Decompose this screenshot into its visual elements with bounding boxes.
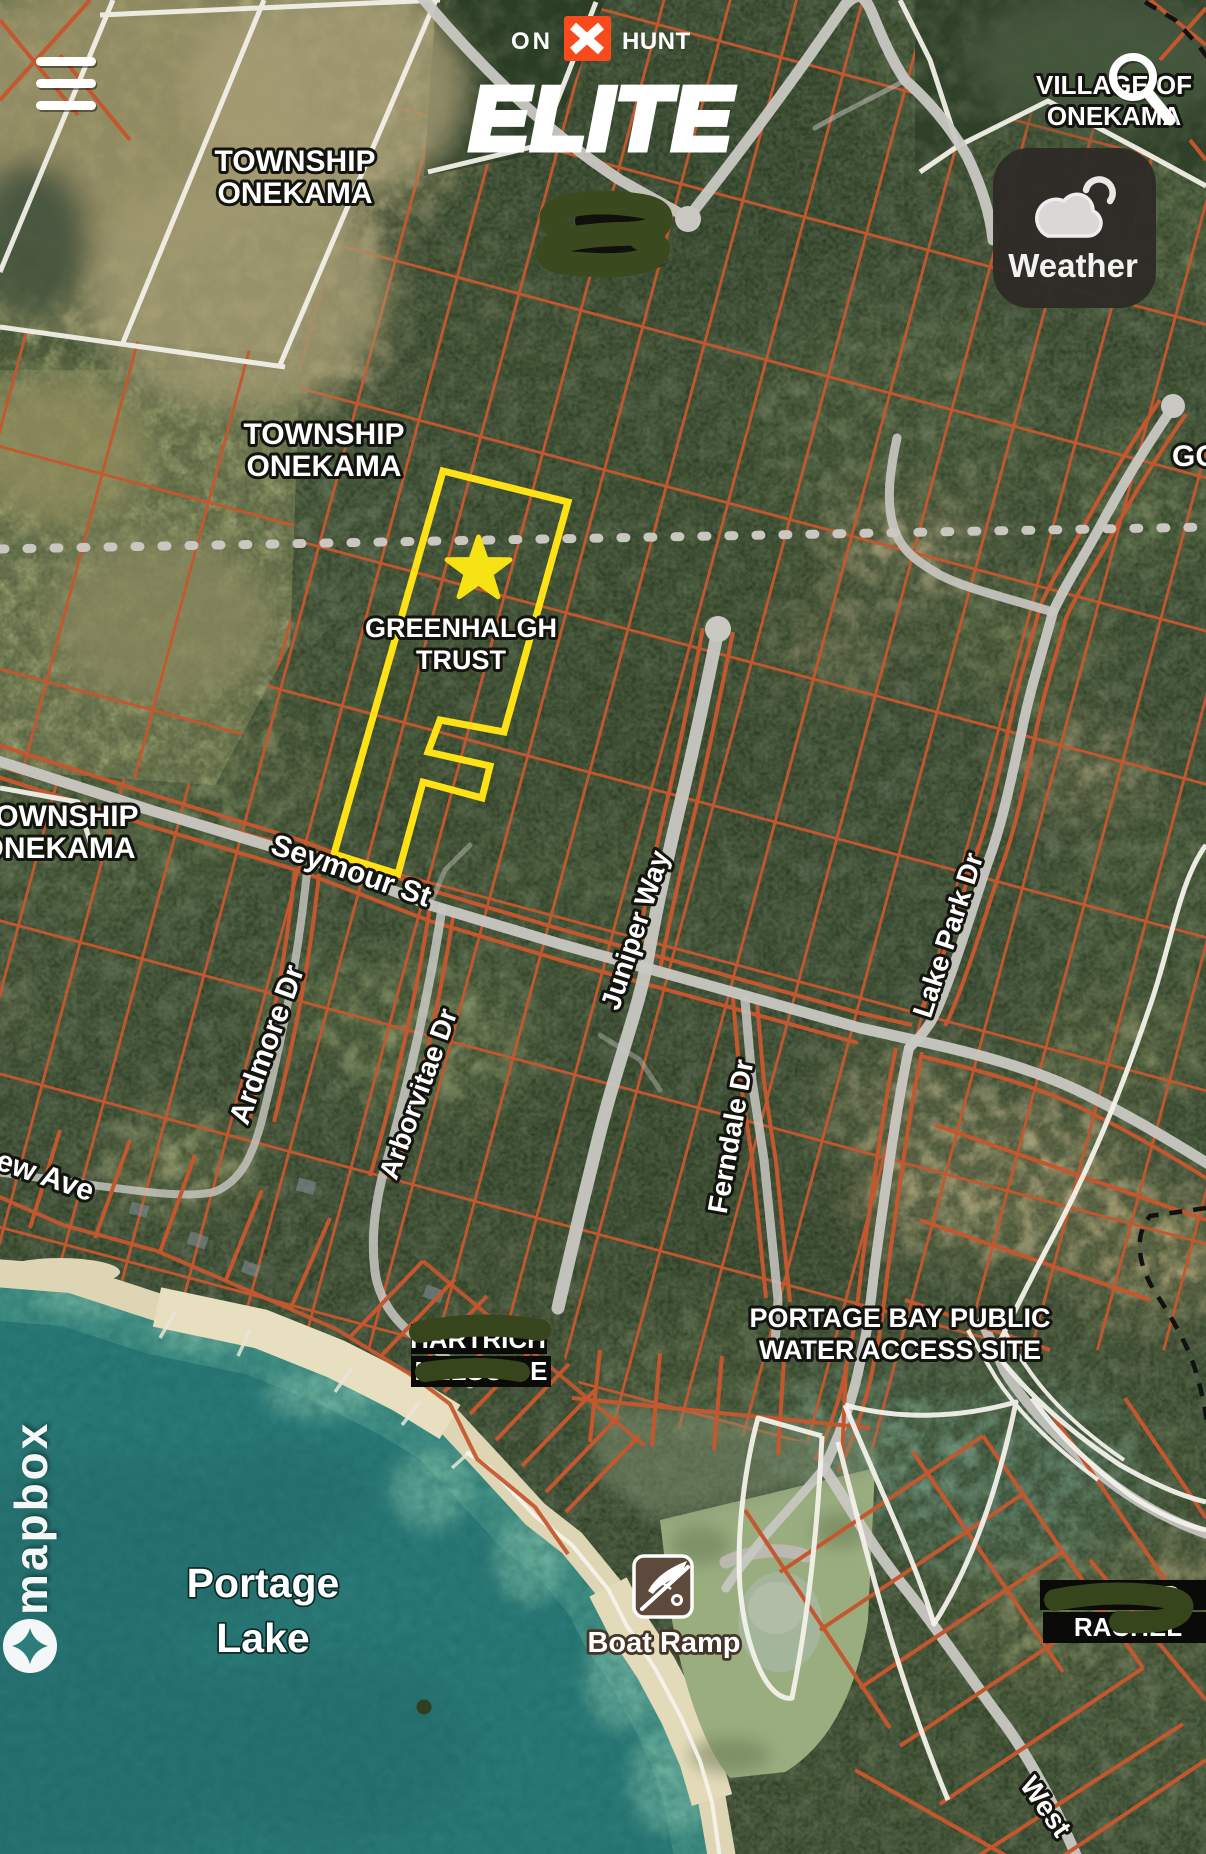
svg-text:TRUST: TRUST [416, 645, 506, 675]
svg-text:TOWNSHIP: TOWNSHIP [0, 800, 139, 833]
svg-text:mapbox: mapbox [5, 1421, 57, 1615]
svg-text:ONEKAMA: ONEKAMA [247, 450, 402, 483]
svg-text:Boat Ramp: Boat Ramp [587, 1627, 740, 1659]
svg-text:GREENHALGH: GREENHALGH [365, 613, 557, 643]
svg-text:ELITE: ELITE [470, 69, 734, 168]
svg-text:HUNT: HUNT [622, 28, 691, 55]
svg-text:Lake: Lake [216, 1615, 309, 1661]
svg-text:ONEKAMA: ONEKAMA [0, 832, 136, 865]
svg-text:ONEKAMA: ONEKAMA [218, 177, 373, 210]
svg-text:ON: ON [511, 28, 553, 55]
svg-text:PORTAGE BAY PUBLIC: PORTAGE BAY PUBLIC [749, 1303, 1050, 1333]
svg-text:Portage: Portage [187, 1560, 340, 1606]
svg-text:GOLF: GOLF [1172, 440, 1206, 473]
svg-text:WATER ACCESS SITE: WATER ACCESS SITE [759, 1335, 1041, 1365]
svg-text:Weather: Weather [1008, 247, 1138, 284]
svg-text:TOWNSHIP: TOWNSHIP [214, 145, 375, 178]
svg-text:TOWNSHIP: TOWNSHIP [243, 418, 404, 451]
